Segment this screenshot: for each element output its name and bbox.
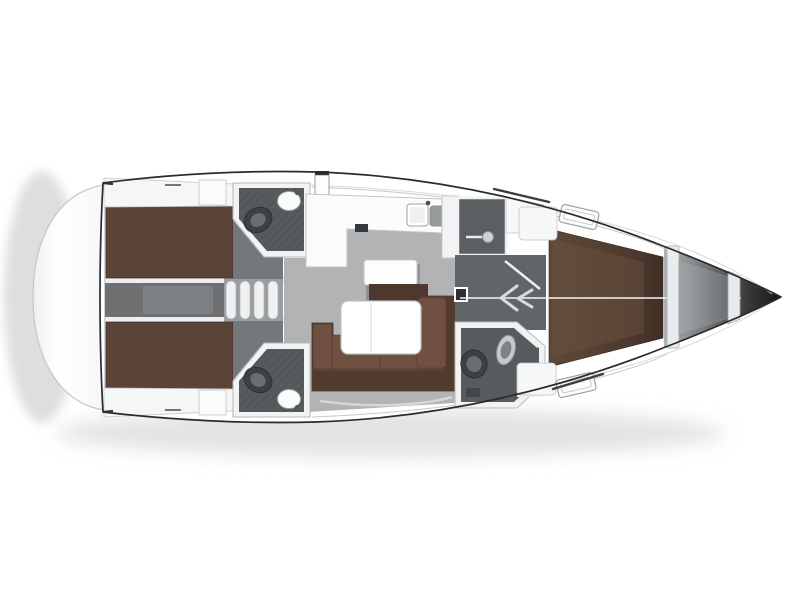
- aft-cabin-port-berth: [106, 206, 233, 278]
- berth-foot-beam: [667, 246, 679, 348]
- shower-head-icon: [483, 232, 494, 243]
- galley-sink-left-basin: [410, 207, 425, 223]
- saloon-sofa-cushion-left: [313, 324, 332, 369]
- faucet-icon: [426, 201, 431, 206]
- aft-port-locker: [199, 180, 226, 205]
- saloon-sofa-backrest: [312, 371, 455, 391]
- shower-room: [458, 198, 506, 255]
- companionway-step-1: [226, 281, 236, 319]
- bow-beam: [728, 271, 740, 324]
- stern-cleat-port: [103, 183, 113, 184]
- companionway-step-3: [254, 281, 264, 319]
- faucet-icon: [295, 405, 299, 409]
- companionway-step-4: [268, 281, 278, 319]
- galley-cooktop-handle: [355, 224, 368, 232]
- aft-cabin-starboard-berth: [106, 322, 233, 392]
- stern-cleat-starboard: [103, 411, 113, 412]
- engine-hatch: [143, 286, 213, 314]
- yacht-floorplan-svg: [0, 0, 800, 600]
- saloon-table: [341, 301, 421, 354]
- faucet-icon: [295, 191, 299, 195]
- galley-bulkhead: [442, 196, 458, 258]
- galley-island-top: [364, 260, 417, 285]
- companionway-step-2: [240, 281, 250, 319]
- forward-head-vent: [466, 388, 480, 397]
- aft-starboard-locker: [199, 390, 226, 415]
- yacht-layout-plan: [0, 0, 800, 600]
- forward-cabin-seat-port: [519, 207, 557, 240]
- wardrobe: [455, 255, 546, 330]
